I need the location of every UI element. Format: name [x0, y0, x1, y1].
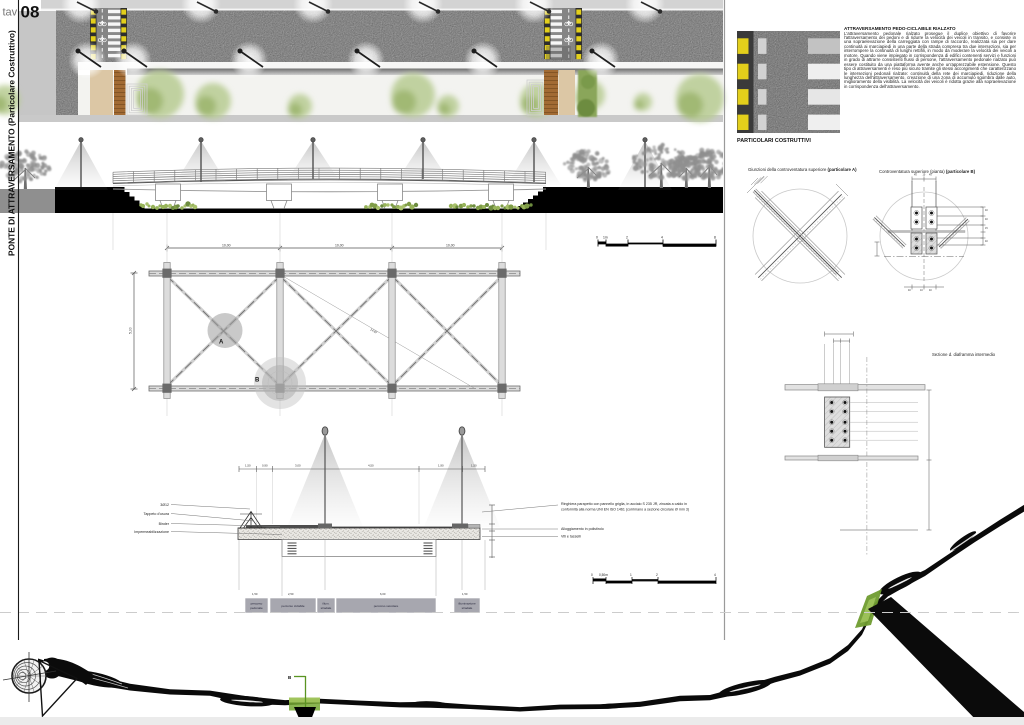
svg-text:0: 0 — [591, 573, 593, 577]
svg-text:0,90: 0,90 — [262, 464, 268, 468]
svg-text:Ringhiera parapetto con pannel: Ringhiera parapetto con pannello griglia… — [561, 502, 687, 506]
svg-text:40: 40 — [929, 289, 932, 292]
svg-text:Viti e tasselli: Viti e tasselli — [561, 535, 581, 539]
svg-text:40: 40 — [908, 289, 911, 292]
svg-text:40: 40 — [985, 240, 988, 243]
svg-text:2: 2 — [626, 236, 628, 240]
svg-text:4: 4 — [661, 236, 663, 240]
svg-text:1: 1 — [630, 573, 632, 577]
svg-text:8: 8 — [714, 236, 716, 240]
svg-text:A: A — [219, 340, 224, 346]
svg-text:0: 0 — [596, 236, 598, 240]
svg-text:0,50m: 0,50m — [599, 573, 608, 577]
svg-text:5,00: 5,00 — [129, 327, 133, 334]
svg-text:4: 4 — [714, 573, 716, 577]
svg-text:percorso veicolare: percorso veicolare — [374, 604, 399, 608]
svg-text:Impermeabilizzazione: Impermeabilizzazione — [134, 530, 169, 534]
svg-text:illuminazione: illuminazione — [458, 602, 476, 606]
svg-text:10: 10 — [920, 289, 923, 292]
svg-text:percorso: percorso — [251, 602, 263, 606]
svg-text:Tappeto d'usura: Tappeto d'usura — [144, 512, 169, 516]
svg-text:1,50: 1,50 — [462, 592, 468, 596]
svg-text:08: 08 — [21, 3, 40, 22]
svg-text:Alloggiamento in polistirolo: Alloggiamento in polistirolo — [561, 527, 604, 531]
svg-text:40: 40 — [985, 218, 988, 221]
svg-text:B: B — [255, 378, 260, 384]
svg-text:Binder: Binder — [159, 522, 170, 526]
svg-text:PONTE DI ATTRAVERSAMENTO (Part: PONTE DI ATTRAVERSAMENTO (Particolare Co… — [7, 30, 17, 256]
svg-text:40: 40 — [914, 174, 917, 177]
svg-text:2,50: 2,50 — [288, 592, 294, 596]
svg-text:pedonale: pedonale — [250, 606, 263, 610]
svg-text:6,00: 6,00 — [380, 592, 386, 596]
svg-text:10,00: 10,00 — [446, 244, 455, 248]
svg-text:1m: 1m — [603, 236, 608, 240]
svg-text:percorso ciclabile: percorso ciclabile — [281, 604, 305, 608]
svg-text:illum.: illum. — [322, 602, 329, 606]
svg-text:1,50: 1,50 — [245, 464, 251, 468]
svg-text:tav: tav — [3, 7, 18, 19]
svg-text:40: 40 — [985, 209, 988, 212]
svg-text:B: B — [288, 675, 292, 680]
svg-text:10,00: 10,00 — [335, 244, 344, 248]
svg-text:14,87: 14,87 — [370, 327, 379, 334]
svg-text:4,50: 4,50 — [368, 464, 374, 468]
svg-text:40: 40 — [929, 174, 932, 177]
svg-text:1,90: 1,90 — [438, 464, 444, 468]
svg-text:10,00: 10,00 — [222, 244, 231, 248]
svg-text:stradale: stradale — [321, 606, 332, 610]
svg-text:3Ø12: 3Ø12 — [160, 503, 169, 507]
svg-text:15: 15 — [985, 227, 988, 230]
svg-text:1,50: 1,50 — [471, 464, 477, 468]
svg-text:1,50: 1,50 — [252, 592, 258, 596]
svg-text:conformità alla norma UNI EN I: conformità alla norma UNI EN ISO 1461 (c… — [561, 508, 689, 512]
svg-text:3,00: 3,00 — [295, 464, 301, 468]
svg-text:stradale: stradale — [462, 606, 473, 610]
svg-text:10: 10 — [923, 174, 926, 177]
svg-text:2: 2 — [656, 573, 658, 577]
